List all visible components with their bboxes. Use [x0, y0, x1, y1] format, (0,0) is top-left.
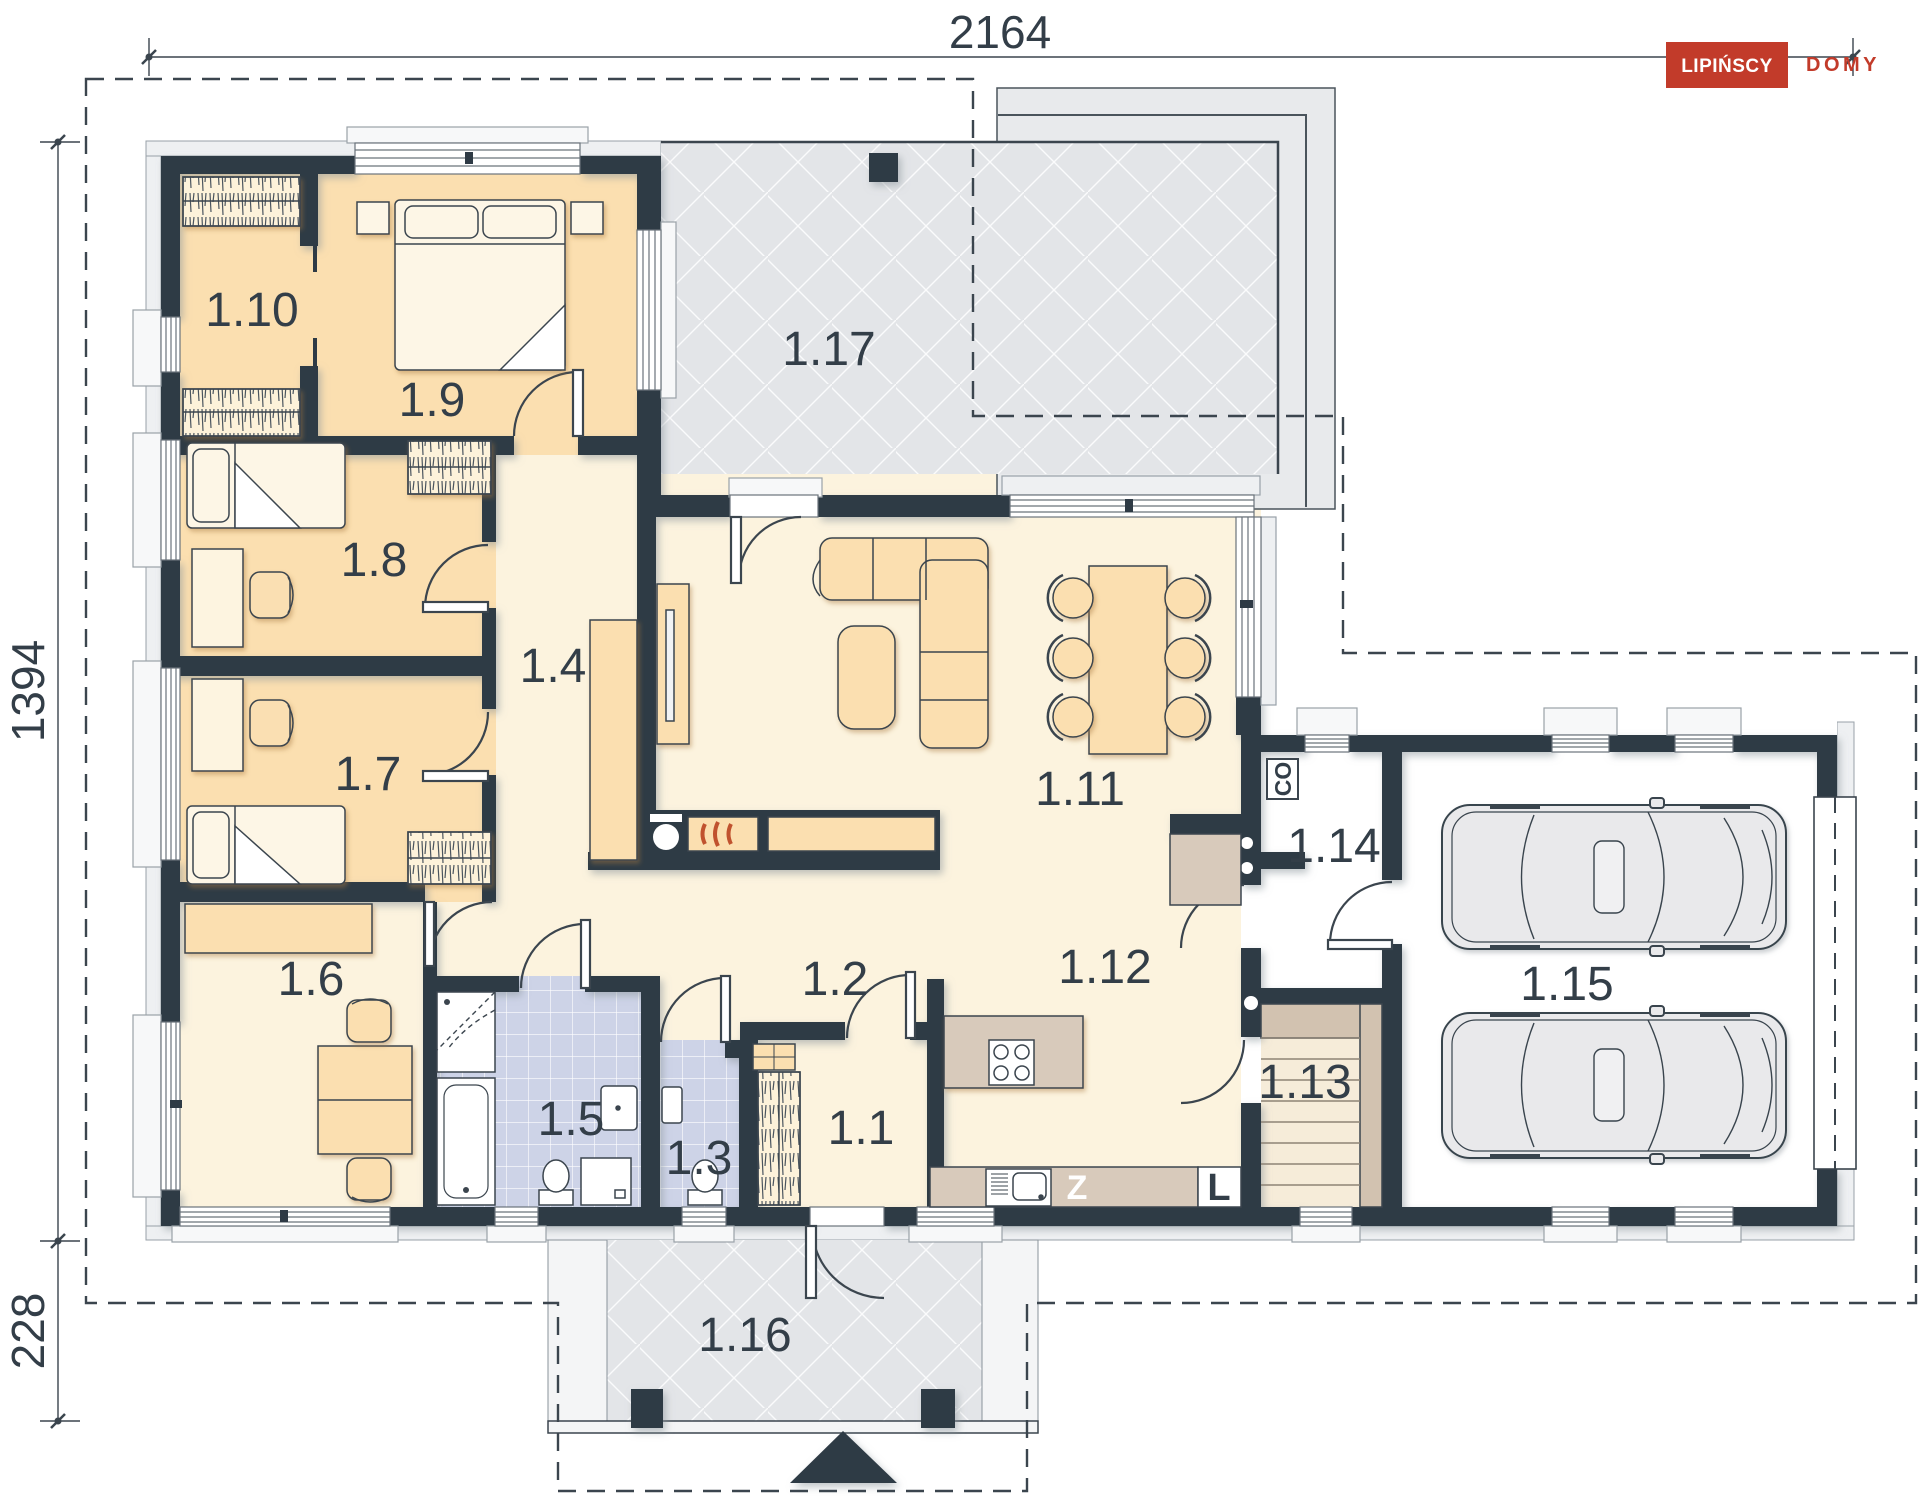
svg-text:2164: 2164 [949, 6, 1051, 58]
svg-text:1.10: 1.10 [205, 284, 298, 337]
svg-text:1.7: 1.7 [335, 748, 402, 801]
svg-text:L: L [1207, 1167, 1230, 1209]
svg-text:1.11: 1.11 [1035, 763, 1125, 816]
svg-text:CO: CO [1270, 762, 1296, 797]
svg-text:1.6: 1.6 [278, 953, 345, 1006]
svg-text:1.1: 1.1 [828, 1102, 895, 1155]
svg-text:1.5: 1.5 [538, 1093, 605, 1146]
svg-text:LIPIŃSCY: LIPIŃSCY [1681, 55, 1773, 77]
svg-text:Z: Z [1067, 1169, 1088, 1207]
svg-text:1.3: 1.3 [666, 1132, 733, 1185]
svg-text:1.14: 1.14 [1287, 820, 1380, 873]
svg-text:1.8: 1.8 [341, 534, 408, 587]
svg-text:1394: 1394 [2, 640, 54, 742]
svg-text:1.4: 1.4 [520, 640, 587, 693]
svg-text:1.15: 1.15 [1520, 958, 1613, 1011]
svg-text:1.2: 1.2 [802, 953, 869, 1006]
svg-text:1.13: 1.13 [1258, 1056, 1351, 1109]
svg-text:1.9: 1.9 [399, 374, 466, 427]
svg-text:DOMY: DOMY [1806, 54, 1880, 76]
svg-text:1.12: 1.12 [1058, 941, 1151, 994]
svg-text:1.16: 1.16 [698, 1309, 791, 1362]
svg-text:1.17: 1.17 [782, 323, 875, 376]
svg-text:228: 228 [2, 1293, 54, 1370]
